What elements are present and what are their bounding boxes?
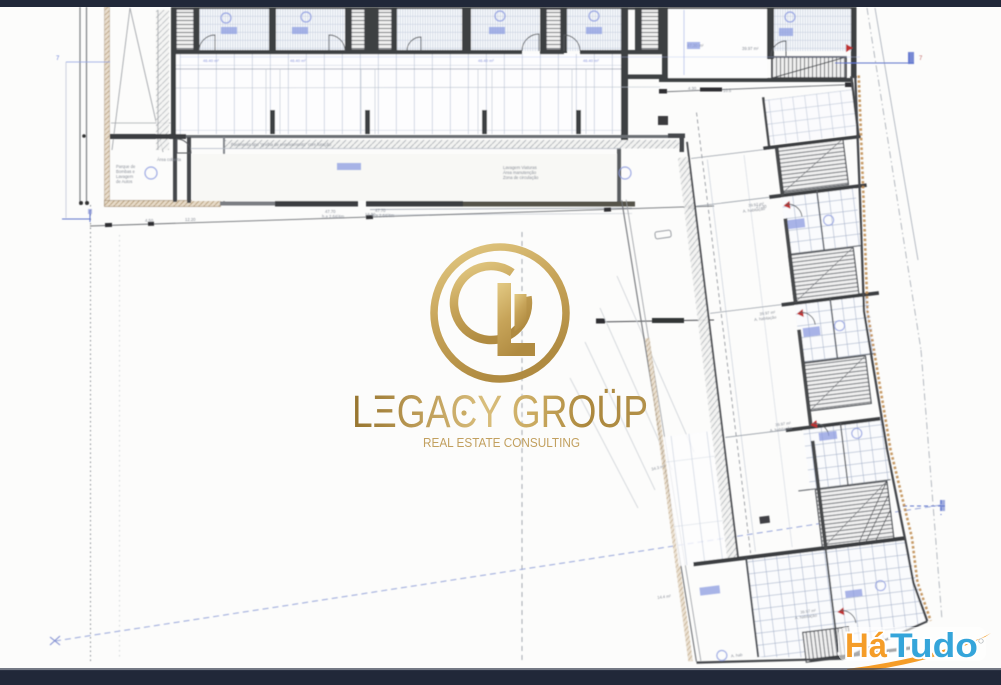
svg-text:46.40 m²: 46.40 m² <box>583 58 599 63</box>
svg-text:h.a 2.64/4m: h.a 2.64/4m <box>322 214 345 219</box>
svg-text:18.50: 18.50 <box>365 212 376 217</box>
svg-text:Tudo: Tudo <box>890 627 978 665</box>
svg-text:12.20: 12.20 <box>185 217 196 222</box>
svg-text:Área coberta: Área coberta <box>157 157 182 162</box>
svg-text:10.5: 10.5 <box>723 88 732 93</box>
svg-text:LΞGACY GROÜP: LΞGACY GROÜP <box>352 386 648 437</box>
svg-text:Zona de circulação: Zona de circulação <box>503 175 539 180</box>
svg-text:46.40 m²: 46.40 m² <box>478 58 494 63</box>
svg-text:4.50: 4.50 <box>145 218 154 223</box>
svg-text:39.97 m²: 39.97 m² <box>742 46 759 51</box>
svg-text:Há: Há <box>845 627 887 665</box>
svg-text:REAL ESTATE CONSULTING: REAL ESTATE CONSULTING <box>423 436 580 450</box>
svg-text:46.40 m²: 46.40 m² <box>203 58 219 63</box>
svg-text:46.40 m²: 46.40 m² <box>290 58 306 63</box>
svg-text:Pavimento tipo "grelha de enre: Pavimento tipo "grelha de enrelvamento" … <box>231 142 332 147</box>
svg-text:4.30: 4.30 <box>688 86 697 91</box>
svg-text:de Autos: de Autos <box>116 179 132 184</box>
svg-text:27.30: 27.30 <box>756 204 767 209</box>
